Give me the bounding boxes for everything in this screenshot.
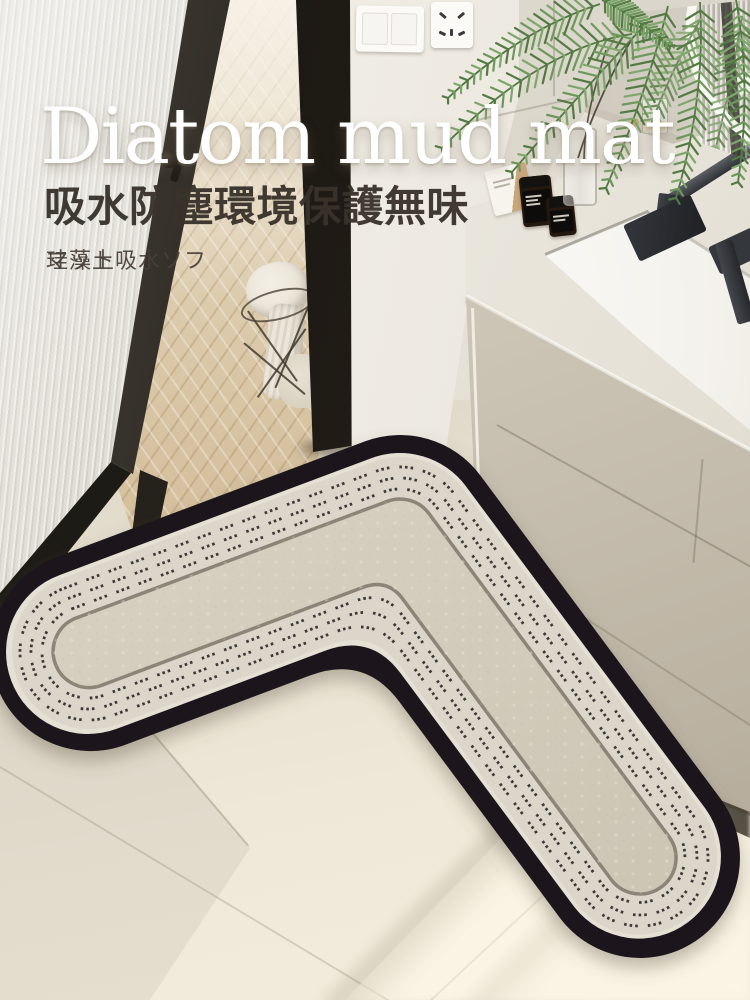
outlet-hole bbox=[458, 31, 465, 36]
bottle-label bbox=[549, 209, 574, 233]
outlet-hole bbox=[457, 12, 465, 19]
wall-tile-seam bbox=[553, 0, 555, 96]
switch-rocker bbox=[362, 13, 389, 45]
outlet-hole bbox=[450, 29, 453, 36]
product-headline: 吸水防塵環境保護無味 bbox=[44, 184, 469, 230]
package-text-line bbox=[494, 183, 510, 188]
power-outlet bbox=[431, 2, 473, 48]
subtitle-part2: マット bbox=[46, 243, 115, 275]
outlet-hole bbox=[439, 31, 446, 36]
switch-rocker bbox=[391, 13, 418, 45]
bathroom-product-scene: Diatom mud mat 吸水防塵環境保護無味 珪藻土吸水ソフ マット bbox=[0, 0, 750, 1000]
product-title: Diatom mud mat bbox=[40, 98, 674, 176]
light-switch bbox=[356, 5, 425, 52]
outlet-hole bbox=[439, 12, 447, 19]
